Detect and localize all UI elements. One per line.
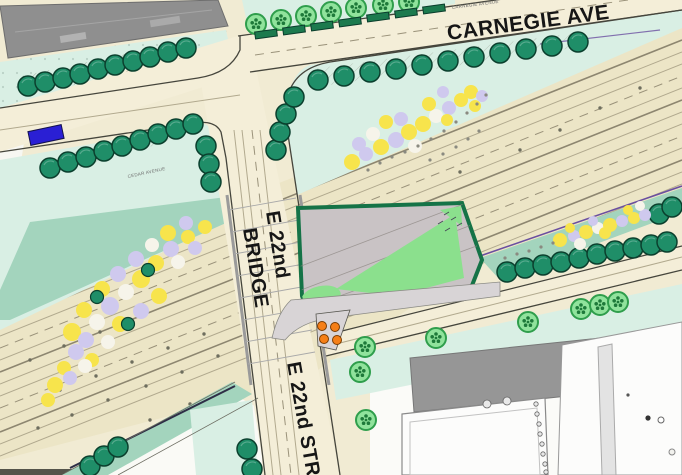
- proposed-tree: [346, 0, 366, 18]
- street-tree: [40, 158, 60, 178]
- proposed-tree: [321, 2, 341, 22]
- street-tree: [360, 62, 380, 82]
- street-tree: [201, 172, 221, 192]
- street-tree: [130, 130, 150, 150]
- proposed-tree: [356, 410, 376, 430]
- street-tree: [497, 262, 517, 282]
- street-tree: [35, 72, 55, 92]
- proposed-tree: [426, 328, 446, 348]
- proposed-tree: [571, 299, 591, 319]
- street-tree: [516, 39, 536, 59]
- street-tree: [237, 439, 257, 459]
- street-tree: [158, 42, 178, 62]
- proposed-tree: [296, 6, 316, 26]
- street-tree: [551, 252, 571, 272]
- street-tree: [70, 64, 90, 84]
- street-tree: [386, 59, 406, 79]
- proposed-tree: [608, 292, 628, 312]
- street-tree: [94, 141, 114, 161]
- street-tree: [266, 140, 286, 160]
- street-tree: [412, 55, 432, 75]
- street-tree: [183, 114, 203, 134]
- proposed-tree: [355, 337, 375, 357]
- building-white-right: [558, 322, 682, 475]
- street-tree: [542, 36, 562, 56]
- street-tree: [334, 66, 354, 86]
- speck: [645, 415, 650, 420]
- site-plan-canvas: CARNEGIE AVE CARNEGIE AVENUE CEDAR AVENU…: [0, 0, 682, 475]
- street-tree: [76, 147, 96, 167]
- site-plan-svg: CARNEGIE AVE CARNEGIE AVENUE CEDAR AVENU…: [0, 0, 682, 475]
- street-tree: [464, 47, 484, 67]
- street-tree: [242, 459, 262, 475]
- street-tree: [657, 232, 677, 252]
- speck: [626, 393, 629, 396]
- street-tree: [148, 124, 168, 144]
- street-tree: [142, 264, 155, 277]
- street-tree: [533, 255, 553, 275]
- street-tree: [605, 241, 625, 261]
- street-tree: [515, 258, 535, 278]
- street-tree: [438, 51, 458, 71]
- street-tree: [140, 47, 160, 67]
- street-tree: [623, 238, 643, 258]
- street-tree: [58, 152, 78, 172]
- street-tree: [490, 43, 510, 63]
- street-tree: [270, 122, 290, 142]
- speck: [658, 417, 664, 423]
- street-tree: [284, 87, 304, 107]
- street-tree: [105, 55, 125, 75]
- street-tree: [568, 32, 588, 52]
- speck: [669, 449, 675, 455]
- street-tree: [569, 248, 589, 268]
- street-tree: [122, 318, 135, 331]
- street-tree: [91, 291, 104, 304]
- street-tree: [108, 437, 128, 457]
- street-tree: [199, 154, 219, 174]
- street-tree: [662, 197, 682, 217]
- street-tree: [112, 136, 132, 156]
- street-tree: [308, 70, 328, 90]
- street-tree: [587, 244, 607, 264]
- street-tree: [176, 38, 196, 58]
- proposed-tree: [518, 312, 538, 332]
- street-tree: [196, 136, 216, 156]
- proposed-tree: [350, 362, 370, 382]
- proposed-tree: [590, 295, 610, 315]
